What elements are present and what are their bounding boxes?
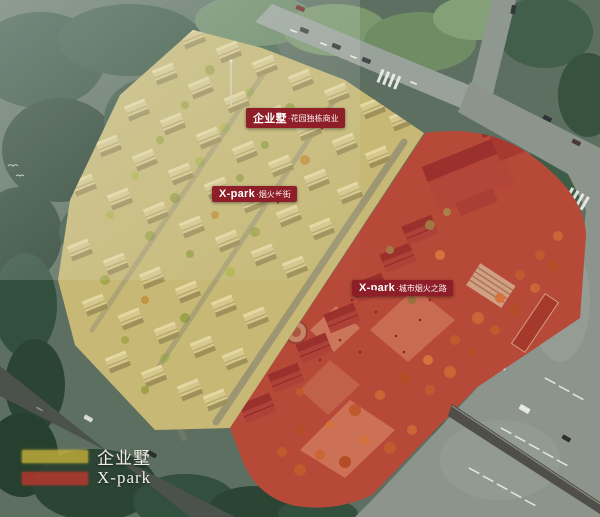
callout-pointer-icon [366, 290, 376, 303]
callout-qiyeshu-desc: ·花园独栋商业 [288, 113, 339, 124]
callout-xpark-street-brand: X-park [219, 188, 255, 200]
callout-qiyeshu: 企业墅 ·花园独栋商业 [246, 108, 345, 128]
legend: 企业墅 X-park [22, 446, 151, 490]
legend-row-qiyeshu: 企业墅 [22, 446, 151, 466]
legend-label-xpark: X-park [97, 468, 151, 488]
legend-label-qiyeshu: 企业墅 [97, 444, 151, 469]
aerial-masterplan: 企业墅 ·花园独栋商业 X-park ·烟火长街 X-park ·城市烟火之路 … [0, 0, 600, 517]
callout-pointer-icon [273, 196, 283, 209]
callout-xpark-road-desc: ·城市烟火之路 [396, 283, 447, 294]
callout-pointer-icon [317, 122, 327, 135]
callout-qiyeshu-brand: 企业墅 [253, 110, 287, 126]
legend-row-xpark: X-park [22, 468, 151, 488]
callout-xpark-road: X-park ·城市烟火之路 [352, 280, 453, 296]
atmospheric-haze [0, 0, 360, 280]
legend-swatch-xpark [22, 472, 88, 485]
callout-xpark-road-brand: X-park [359, 282, 395, 294]
callout-xpark-street: X-park ·烟火长街 [212, 186, 297, 202]
legend-swatch-qiyeshu [22, 450, 88, 463]
aerial-render-image [0, 0, 600, 517]
